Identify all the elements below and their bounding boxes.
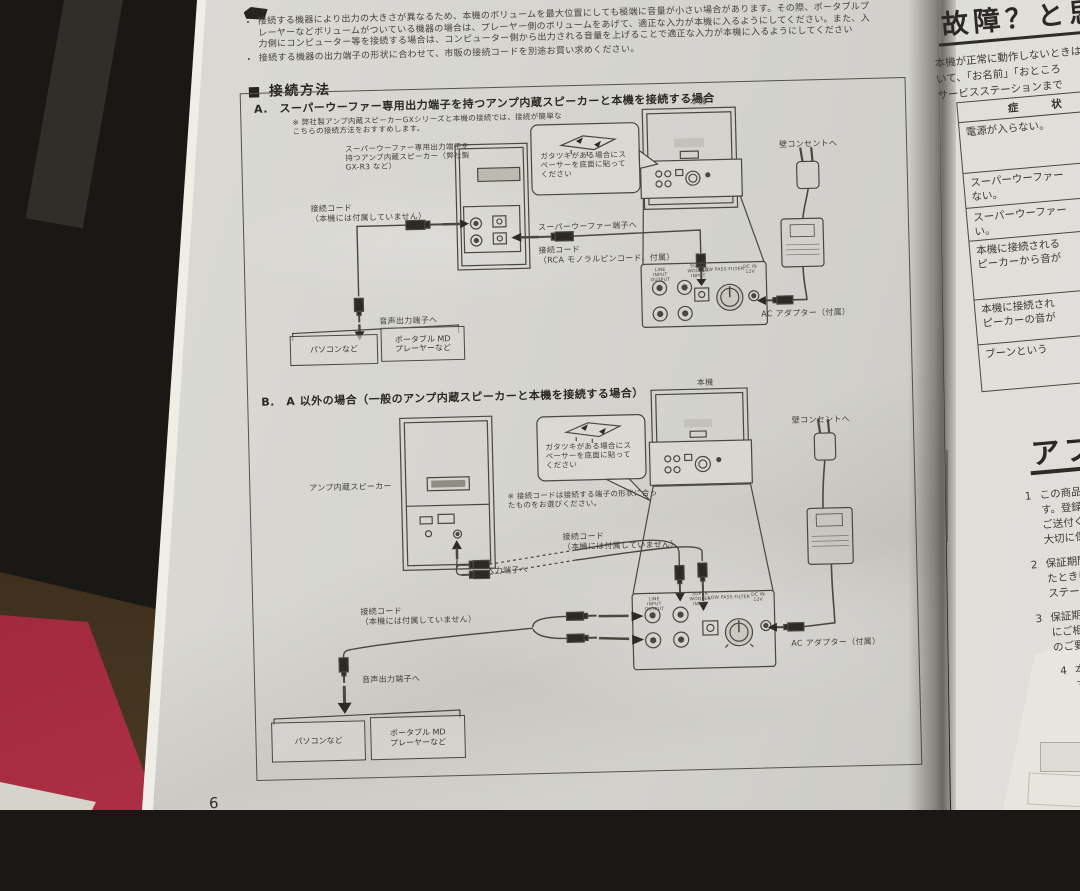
showthrough-figure xyxy=(1040,742,1080,772)
item-text: 保証期間 にご相談 のご要望 xyxy=(1050,607,1080,655)
after-service-item: 3 保証期間 にご相談 のご要望 xyxy=(1035,604,1080,658)
after-service-item: 2 保証期間 たときは ステーシ xyxy=(1030,550,1080,604)
showthrough-figure xyxy=(1027,772,1080,807)
item-number: 1 xyxy=(1024,489,1039,550)
item-number: 4 xyxy=(1060,664,1073,695)
after-service-list: 1 この商品に す。登録 ご送付くだ 大切に保 2 保証期間 たときは ステーシ… xyxy=(1024,481,1080,705)
item-number: 3 xyxy=(1035,612,1049,658)
right-page-content: 故障？と思 本機が正常に動作しないときは いて、「お名前」「おところ サービスス… xyxy=(0,0,1080,891)
photo-of-manual-page: { "page_number": "6", "intro": { "bullet… xyxy=(0,0,1080,810)
symptom-table: 症 状 電源が入らない。 スーパーウーファー ない。 スーパーウーファー い。 … xyxy=(956,88,1080,392)
item-text: この商品に す。登録 ご送付くだ 大切に保 xyxy=(1039,484,1080,548)
after-service-item: 4 本機の す。性 xyxy=(1060,657,1080,694)
item-number: 2 xyxy=(1030,558,1044,604)
after-service-header: アフタ xyxy=(1029,423,1080,473)
item-text: 保証期間 たときは ステーシ xyxy=(1045,554,1080,602)
item-text: 本機の す。性 xyxy=(1075,660,1080,693)
after-service-item: 1 この商品に す。登録 ご送付くだ 大切に保 xyxy=(1024,481,1080,549)
page-gutter-line xyxy=(946,450,948,542)
